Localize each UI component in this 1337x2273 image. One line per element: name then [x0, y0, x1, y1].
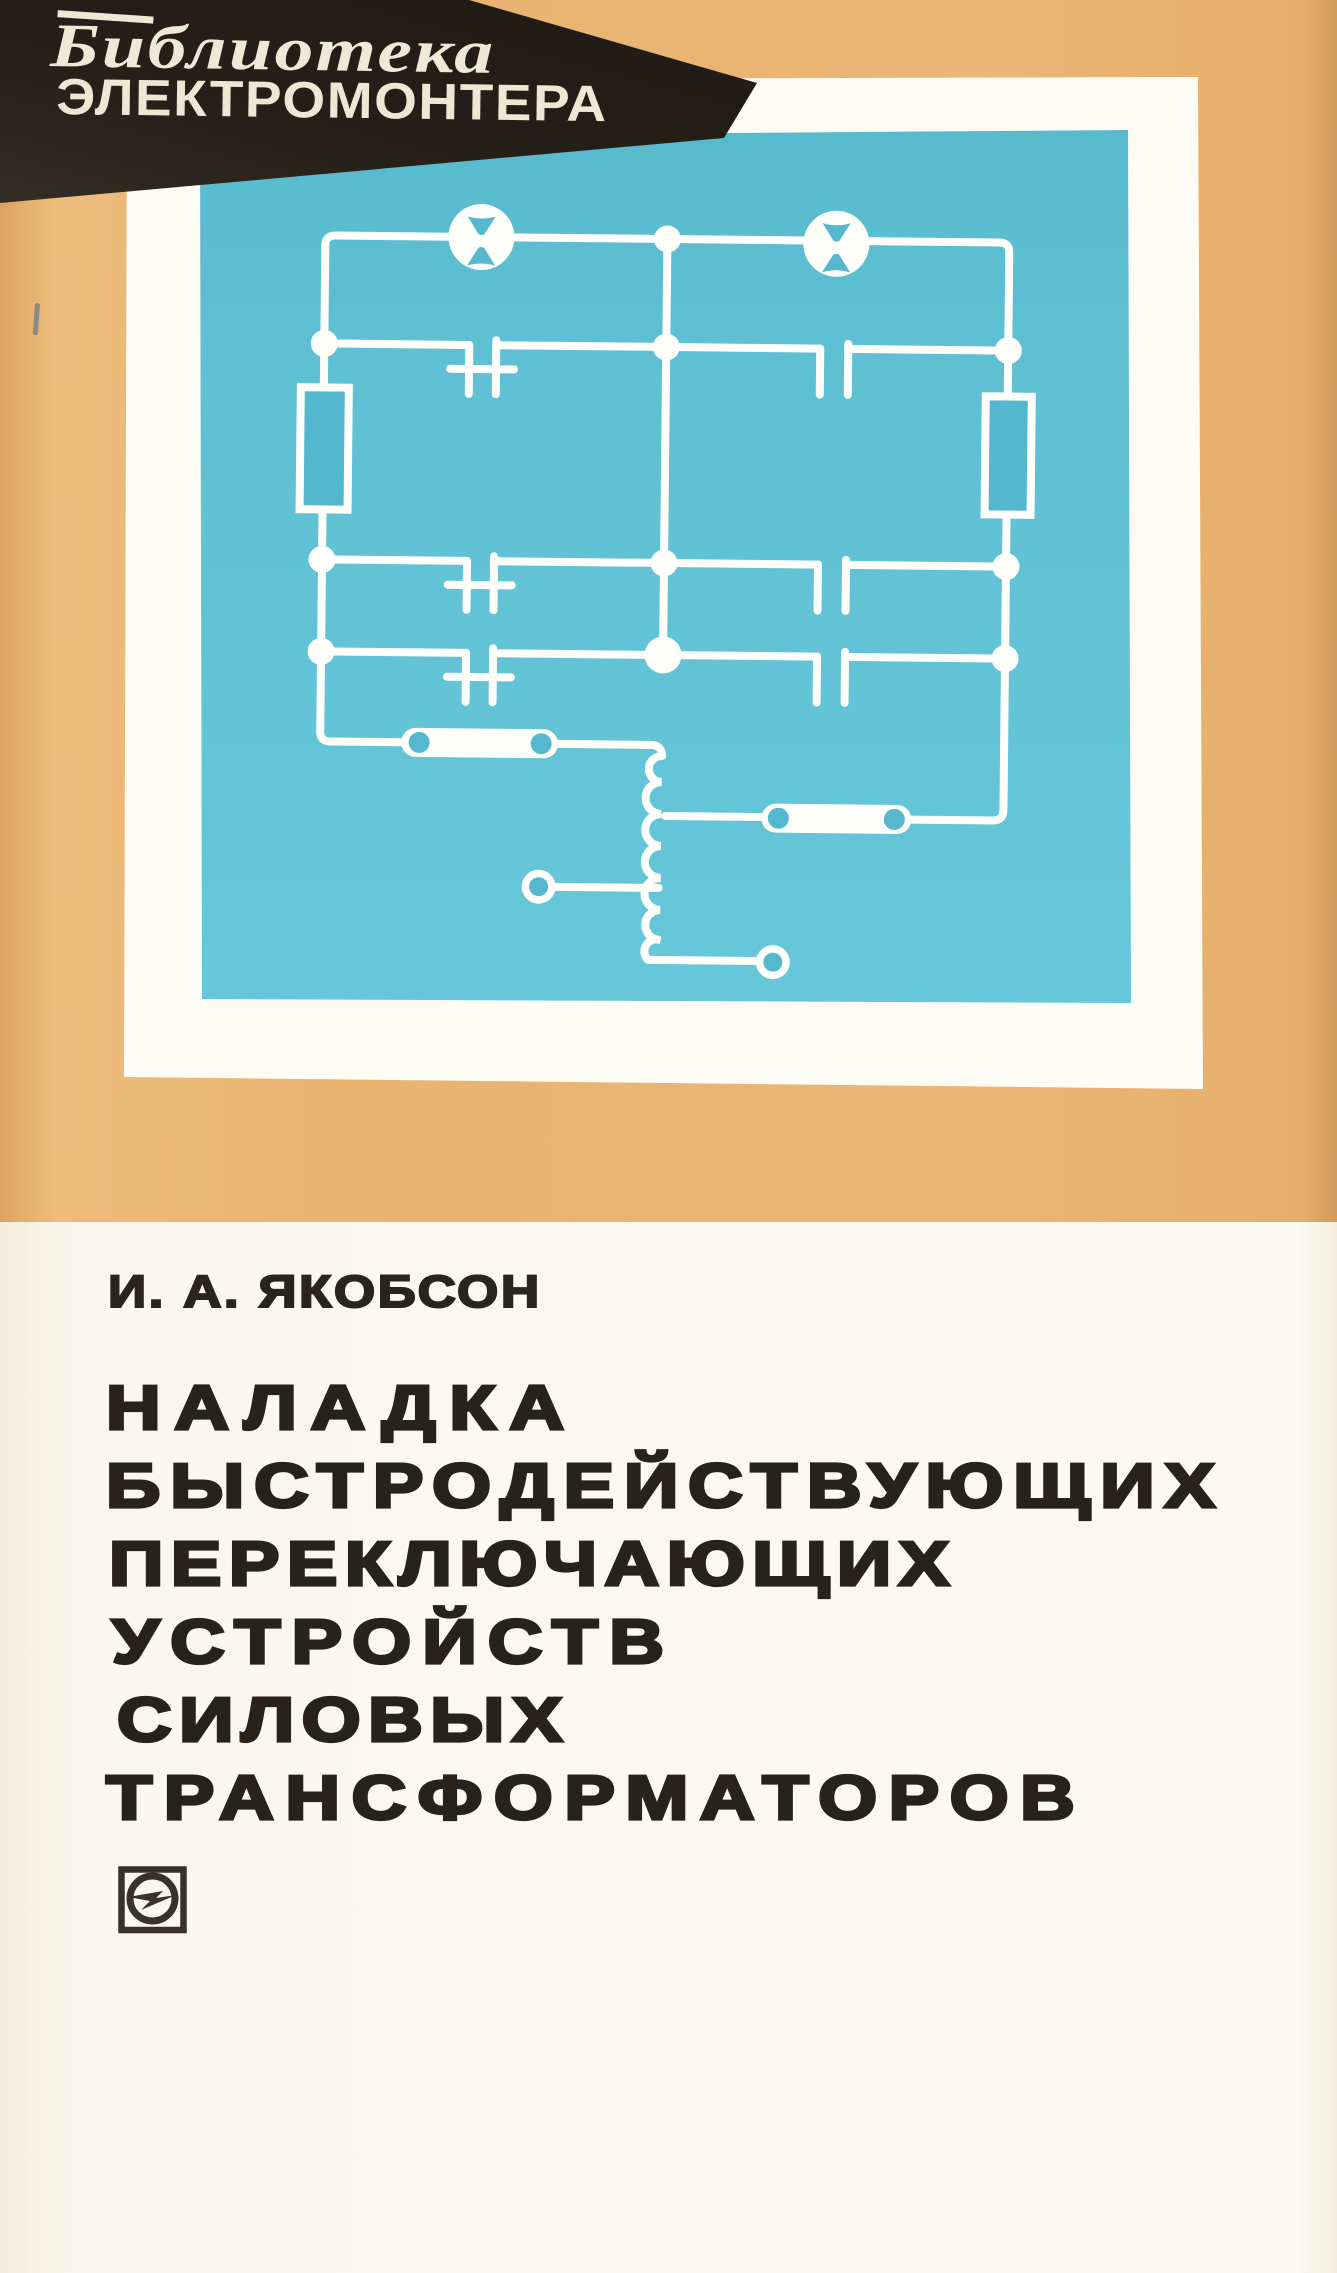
- svg-text:ТРАНСФОРМАТОРОВ: ТРАНСФОРМАТОРОВ: [106, 1763, 1086, 1833]
- svg-text:ЭЛЕКТРОМОНТЕРА: ЭЛЕКТРОМОНТЕРА: [56, 69, 608, 133]
- svg-text:ПЕРЕКЛЮЧАЮЩИХ: ПЕРЕКЛЮЧАЮЩИХ: [109, 1529, 957, 1599]
- svg-text:СИЛОВЫХ: СИЛОВЫХ: [117, 1685, 570, 1755]
- svg-text:И. А. ЯКОБСОН: И. А. ЯКОБСОН: [108, 1267, 542, 1317]
- svg-text:НАЛАДКА: НАЛАДКА: [106, 1373, 578, 1443]
- svg-text:УСТРОЙСТВ: УСТРОЙСТВ: [112, 1607, 675, 1677]
- svg-text:БЫСТРОДЕЙСТВУЮЩИХ: БЫСТРОДЕЙСТВУЮЩИХ: [106, 1451, 1225, 1521]
